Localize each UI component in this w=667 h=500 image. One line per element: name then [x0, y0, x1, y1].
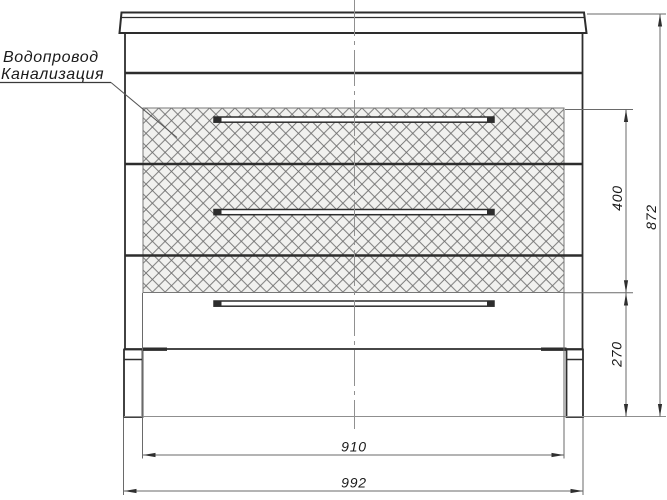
bottom-shadow-left [143, 348, 168, 351]
label-sewerage: Канализация [1, 66, 104, 83]
elevation-drawing: 400 872 270 910 992 Водопровод Канализац… [0, 0, 667, 500]
label-water-supply: Водопровод [3, 49, 99, 66]
hatch-zone-pattern [143, 108, 564, 293]
countertop [120, 13, 587, 34]
dim-text-270: 270 [609, 341, 625, 368]
bottom-shadow-right [541, 348, 567, 351]
dim-text-400: 400 [609, 185, 625, 211]
drawing-canvas: 400 872 270 910 992 Водопровод Канализац… [0, 0, 667, 500]
countertop-slab [120, 13, 587, 34]
dim-text-992: 992 [341, 475, 367, 491]
dim-text-910: 910 [341, 439, 367, 455]
dim-text-872: 872 [643, 204, 659, 230]
